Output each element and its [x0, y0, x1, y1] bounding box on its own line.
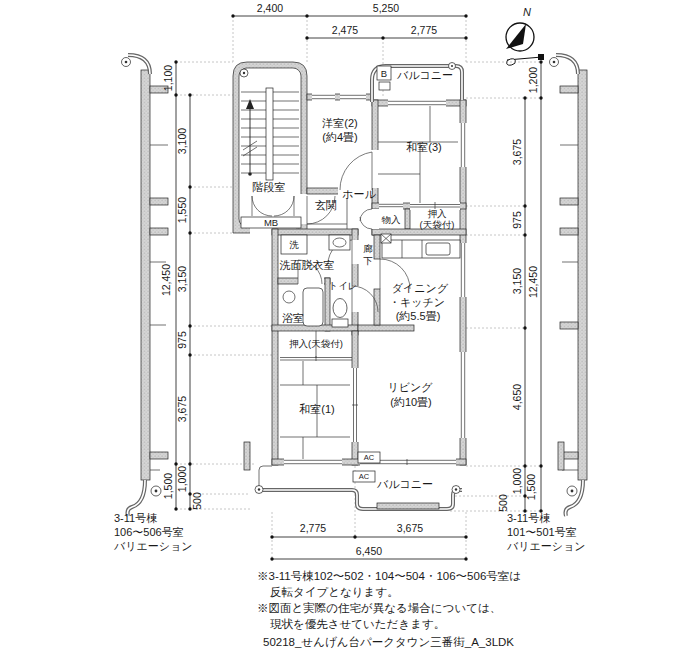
corridor-label-1: 廊 — [363, 243, 373, 254]
closet-upper-label: 押入 — [428, 208, 448, 219]
closet-lower-label: 押入(天袋付) — [289, 338, 343, 349]
kitchen-counter — [381, 234, 460, 258]
dim-bottom-3675: 3,675 — [397, 522, 423, 534]
dk-label-1: ダイニング — [392, 282, 449, 294]
entrance-label: 玄関 — [315, 199, 337, 211]
japanese-room1-label: 和室(1) — [299, 403, 334, 415]
toilet-fixture — [332, 299, 348, 328]
dim-right-975: 975 — [511, 211, 523, 229]
right-variation-line2: 101〜501号室 — [507, 526, 577, 538]
dim-left-1000: 1,000 — [176, 466, 188, 492]
balcony-marker-label: B — [381, 68, 387, 79]
floor-plan-sheet: N 2,400 5,250 2,475 2,775 1,100 — [0, 0, 700, 650]
washer-label: 洗 — [289, 239, 299, 250]
dim-right-1200: 1,200 — [527, 67, 539, 93]
drawing-footer-id: 50218_せんげん台パークタウン三番街_A_3LDK — [263, 636, 514, 648]
dim-top-2400: 2,400 — [257, 2, 283, 14]
dim-right-12450: 12,450 — [527, 266, 539, 298]
dim-left-1500: 1,500 — [162, 473, 174, 499]
annotations: 3-11号棟 106〜506号室 バリエーション 3-11号棟 101〜501号… — [113, 512, 586, 648]
dim-left-500: 500 — [191, 492, 203, 510]
right-variation-line3: バリエーション — [506, 540, 586, 552]
dim-right-1500: 1,500 — [525, 474, 537, 500]
bottom-balcony-label: バルコニー — [376, 478, 433, 490]
living-label-2: (約10畳) — [390, 396, 432, 408]
dim-right-500: 500 — [497, 494, 509, 512]
dim-right-1000: 1,000 — [511, 468, 523, 494]
fixtures — [281, 234, 460, 482]
dim-left-3675: 3,675 — [176, 396, 188, 422]
section-marker — [506, 54, 544, 66]
left-variation-line1: 3-11号棟 — [114, 512, 157, 524]
dim-left-3100: 3,100 — [176, 128, 188, 154]
dim-left-12450: 12,450 — [160, 264, 172, 296]
left-variation-line3: バリエーション — [113, 540, 193, 552]
western-room2-label: 洋室(2) — [321, 117, 357, 129]
dim-right-3150: 3,150 — [511, 268, 523, 294]
toilet-label: トイレ — [328, 280, 357, 291]
dim-left-3150: 3,150 — [176, 266, 188, 292]
dim-bottom-2775: 2,775 — [300, 522, 326, 534]
wing-stubs — [560, 86, 578, 459]
right-building-wing — [550, 55, 588, 516]
dim-left-975: 975 — [176, 331, 188, 349]
living-label-1: リビング — [387, 381, 433, 393]
dim-right-4650: 4,650 — [511, 384, 523, 410]
ac-outdoor-label: AC — [359, 472, 370, 481]
note-line1: ※3-11号棟102〜502・104〜504・106〜506号室は — [257, 570, 521, 582]
top-balcony-label: バルコニー — [396, 69, 453, 81]
western-room2-size: (約4畳) — [322, 131, 357, 143]
dim-top-2775: 2,775 — [411, 24, 437, 36]
vanity-sink — [329, 235, 350, 250]
right-variation-line1: 3-11号棟 — [507, 512, 550, 524]
ac-indoor-label: AC — [364, 453, 375, 462]
dim-right-3675: 3,675 — [511, 139, 523, 165]
hall-label: ホール — [342, 188, 376, 200]
japanese-room3-label: 和室(3) — [406, 141, 441, 153]
dim-left-1100: 1,100 — [162, 65, 174, 91]
meter-box-label: MB — [264, 217, 278, 228]
dk-label-2: ・キッチン — [389, 296, 445, 308]
note-line3: ※図面と実際の住宅が異なる場合については、 — [257, 602, 501, 614]
stairwell-label: 階段室 — [253, 181, 286, 193]
note-line2: 反転タイプとなります。 — [270, 586, 399, 599]
dim-top-5250: 5,250 — [373, 2, 399, 14]
left-variation-line2: 106〜506号室 — [114, 526, 184, 538]
closet-upper-note: (天袋付) — [420, 219, 455, 230]
dim-top-2475: 2,475 — [332, 24, 358, 36]
dim-bottom-6450: 6,450 — [356, 545, 382, 557]
note-line4: 現状を優先させていただきます。 — [270, 618, 445, 631]
bath-label: 浴室 — [282, 312, 304, 324]
compass-north-label: N — [523, 6, 531, 18]
corridor-label-2: 下 — [363, 255, 373, 266]
washroom-label: 洗面脱衣室 — [280, 259, 335, 271]
dk-label-3: (約5.5畳) — [396, 310, 441, 322]
storage-label: 物入 — [382, 214, 402, 225]
compass: N — [506, 6, 544, 66]
dim-left-1550: 1,550 — [176, 197, 188, 223]
